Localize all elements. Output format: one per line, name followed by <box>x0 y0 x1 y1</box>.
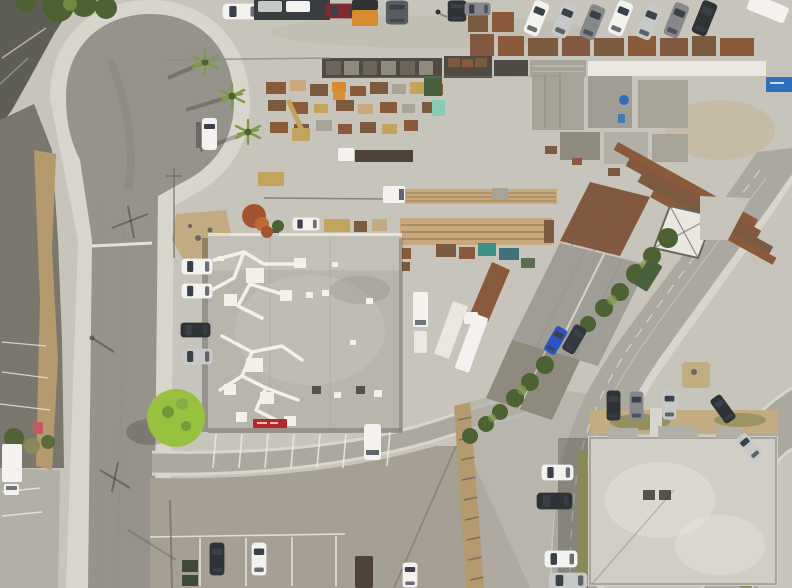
aerial-photo-canvas <box>0 0 792 588</box>
white-box-trucks <box>413 292 428 353</box>
dumpster-2 <box>182 575 198 586</box>
white-wall-row <box>588 61 766 76</box>
storefront-sign <box>253 419 287 428</box>
mint-pallet <box>432 100 445 116</box>
white-trailer-left <box>2 444 22 482</box>
roof-vent-1 <box>643 490 655 500</box>
red-sedan <box>326 4 357 19</box>
gray-suv <box>386 0 408 24</box>
culdesac-van <box>196 118 217 150</box>
dark-trailer <box>355 556 373 588</box>
pink-bin <box>33 422 43 434</box>
green-container <box>424 76 442 96</box>
white-pickup <box>292 218 319 231</box>
dumpster-1 <box>182 560 198 572</box>
orange-truck <box>352 0 378 26</box>
dirt-patch <box>682 362 710 388</box>
main-warehouse <box>202 233 403 433</box>
white-pickup-top <box>223 4 260 20</box>
dog <box>691 369 697 375</box>
flatbed-truck-dark <box>338 148 413 162</box>
pedestrian <box>436 10 441 15</box>
blue-barrel <box>619 95 629 105</box>
lumber-stack-long <box>400 218 554 245</box>
blue-shipping-container <box>766 77 792 92</box>
aerial-photo <box>0 0 792 588</box>
